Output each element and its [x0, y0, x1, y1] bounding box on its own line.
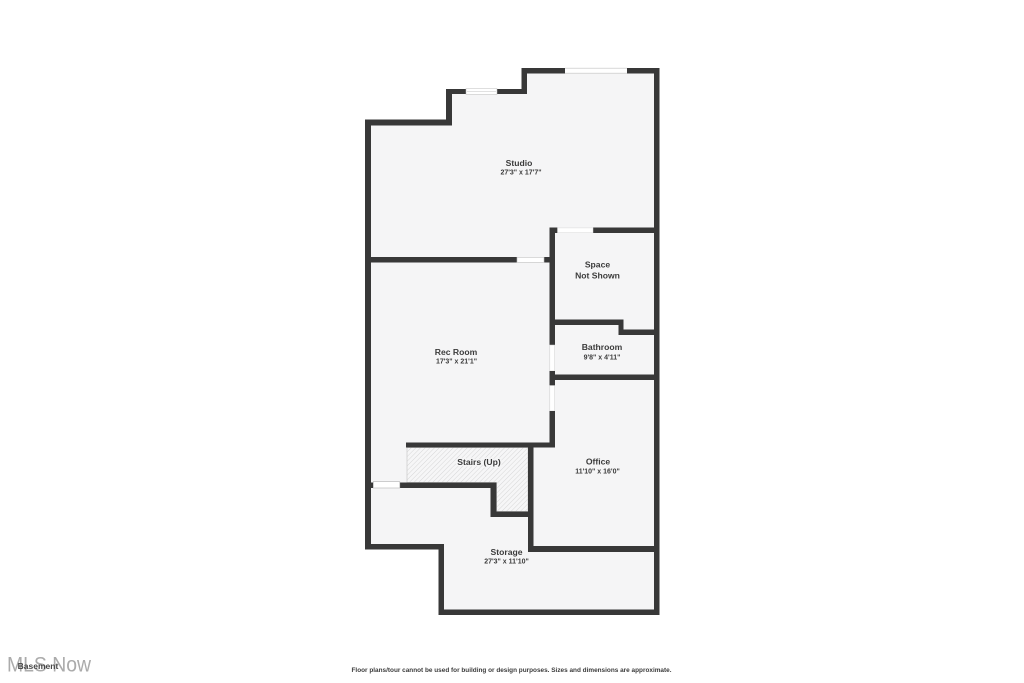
- svg-text:9'8" x 4'11": 9'8" x 4'11": [584, 355, 621, 362]
- svg-text:Not Shown: Not Shown: [575, 271, 620, 281]
- svg-text:11'10" x 16'0": 11'10" x 16'0": [575, 469, 620, 476]
- svg-text:Basement: Basement: [18, 661, 59, 671]
- svg-text:Office: Office: [586, 457, 611, 467]
- svg-text:27'3" x 17'7": 27'3" x 17'7": [500, 170, 541, 177]
- svg-text:Studio: Studio: [506, 158, 533, 168]
- svg-text:27'3" x 11'10": 27'3" x 11'10": [484, 559, 529, 566]
- svg-text:Space: Space: [585, 260, 611, 270]
- svg-text:Rec Room: Rec Room: [435, 347, 478, 357]
- svg-text:Bathroom: Bathroom: [582, 342, 623, 352]
- svg-text:Stairs (Up): Stairs (Up): [457, 457, 501, 467]
- svg-text:Floor plans/tour cannot be use: Floor plans/tour cannot be used for buil…: [352, 667, 672, 674]
- svg-text:Storage: Storage: [491, 547, 523, 557]
- svg-text:17'3" x 21'1": 17'3" x 21'1": [436, 358, 477, 365]
